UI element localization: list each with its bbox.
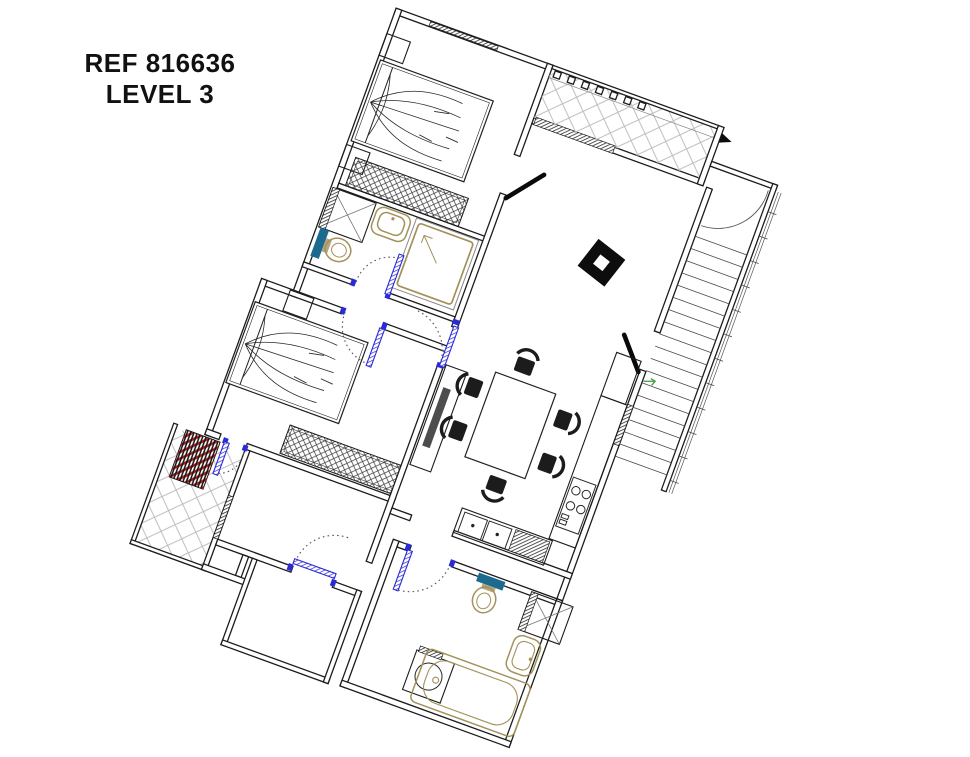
rotated-plan (108, 0, 798, 757)
stairwell (600, 133, 796, 495)
door-icon (393, 550, 412, 591)
door-icon (366, 328, 384, 367)
bedroom-1 (291, 8, 552, 352)
door-leaf-icon (506, 165, 544, 207)
floor-plan-drawing (0, 0, 970, 757)
terrace-top (532, 65, 724, 186)
floor-plan-page: { "annotation": { "ref": "REF 816636", "… (0, 0, 970, 757)
bathroom-2 (340, 538, 574, 751)
door-icon (293, 559, 336, 579)
column-icon (578, 239, 626, 287)
tile-floor (534, 69, 717, 178)
entry-mark-icon (643, 377, 655, 386)
dining-table-icon (424, 331, 597, 520)
window-icon (429, 22, 498, 51)
